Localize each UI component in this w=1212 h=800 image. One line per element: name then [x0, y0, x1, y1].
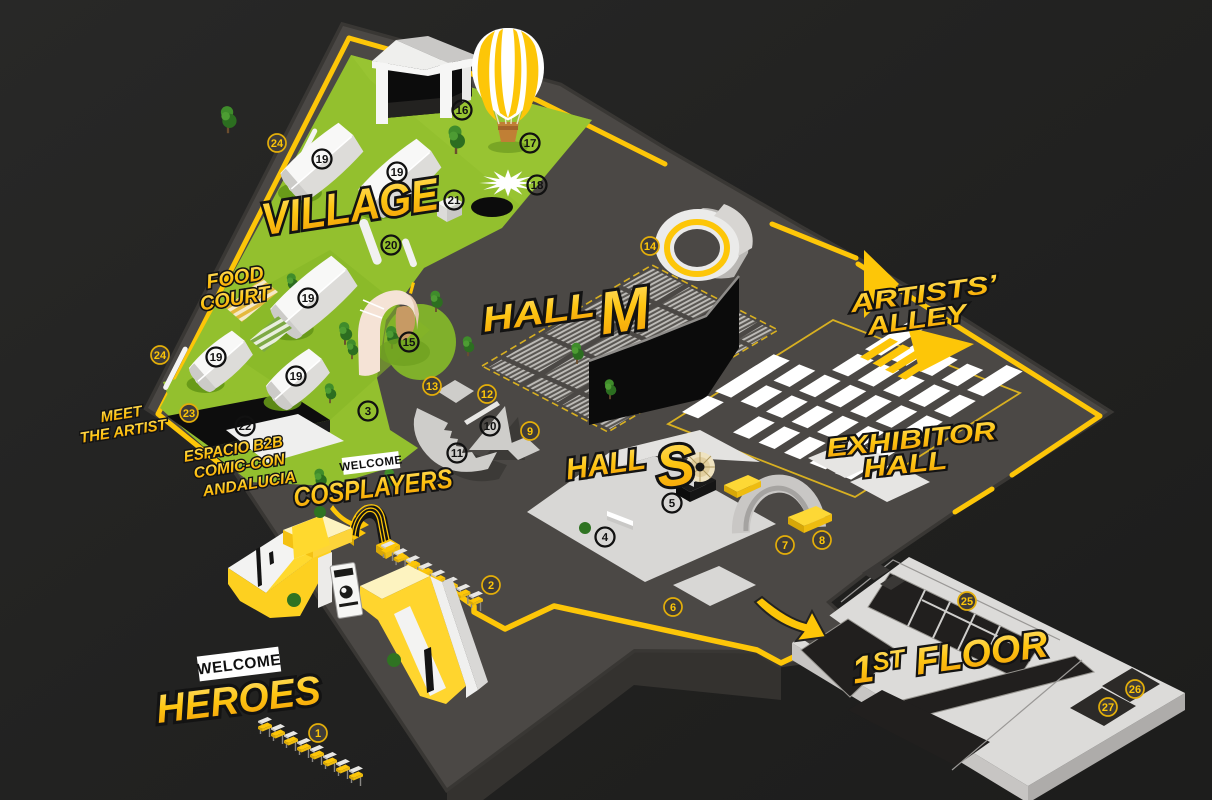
svg-text:19: 19 — [302, 293, 315, 305]
svg-text:21: 21 — [448, 195, 461, 207]
svg-text:1: 1 — [315, 728, 321, 740]
svg-text:2: 2 — [488, 580, 494, 592]
svg-text:16: 16 — [456, 105, 469, 117]
svg-text:6: 6 — [670, 602, 676, 614]
svg-text:24: 24 — [154, 350, 167, 362]
svg-text:5: 5 — [669, 498, 676, 510]
svg-text:20: 20 — [385, 240, 398, 252]
svg-text:23: 23 — [183, 408, 195, 420]
svg-text:13: 13 — [426, 381, 438, 393]
svg-text:19: 19 — [391, 167, 404, 179]
svg-text:9: 9 — [527, 426, 533, 438]
svg-text:22: 22 — [239, 421, 252, 433]
svg-text:25: 25 — [961, 596, 973, 608]
svg-text:14: 14 — [644, 241, 657, 253]
svg-text:19: 19 — [316, 154, 329, 166]
svg-text:7: 7 — [782, 540, 788, 552]
svg-text:18: 18 — [531, 180, 544, 192]
svg-text:17: 17 — [524, 138, 537, 150]
svg-text:19: 19 — [210, 352, 223, 364]
svg-text:26: 26 — [1129, 684, 1141, 696]
svg-text:27: 27 — [1102, 702, 1114, 714]
svg-text:11: 11 — [451, 448, 464, 460]
svg-text:19: 19 — [290, 371, 303, 383]
svg-text:12: 12 — [481, 389, 493, 401]
svg-text:4: 4 — [602, 532, 609, 544]
svg-text:15: 15 — [403, 337, 416, 349]
svg-text:24: 24 — [271, 138, 284, 150]
svg-text:10: 10 — [484, 421, 497, 433]
svg-text:3: 3 — [365, 406, 371, 418]
svg-text:8: 8 — [819, 535, 825, 547]
